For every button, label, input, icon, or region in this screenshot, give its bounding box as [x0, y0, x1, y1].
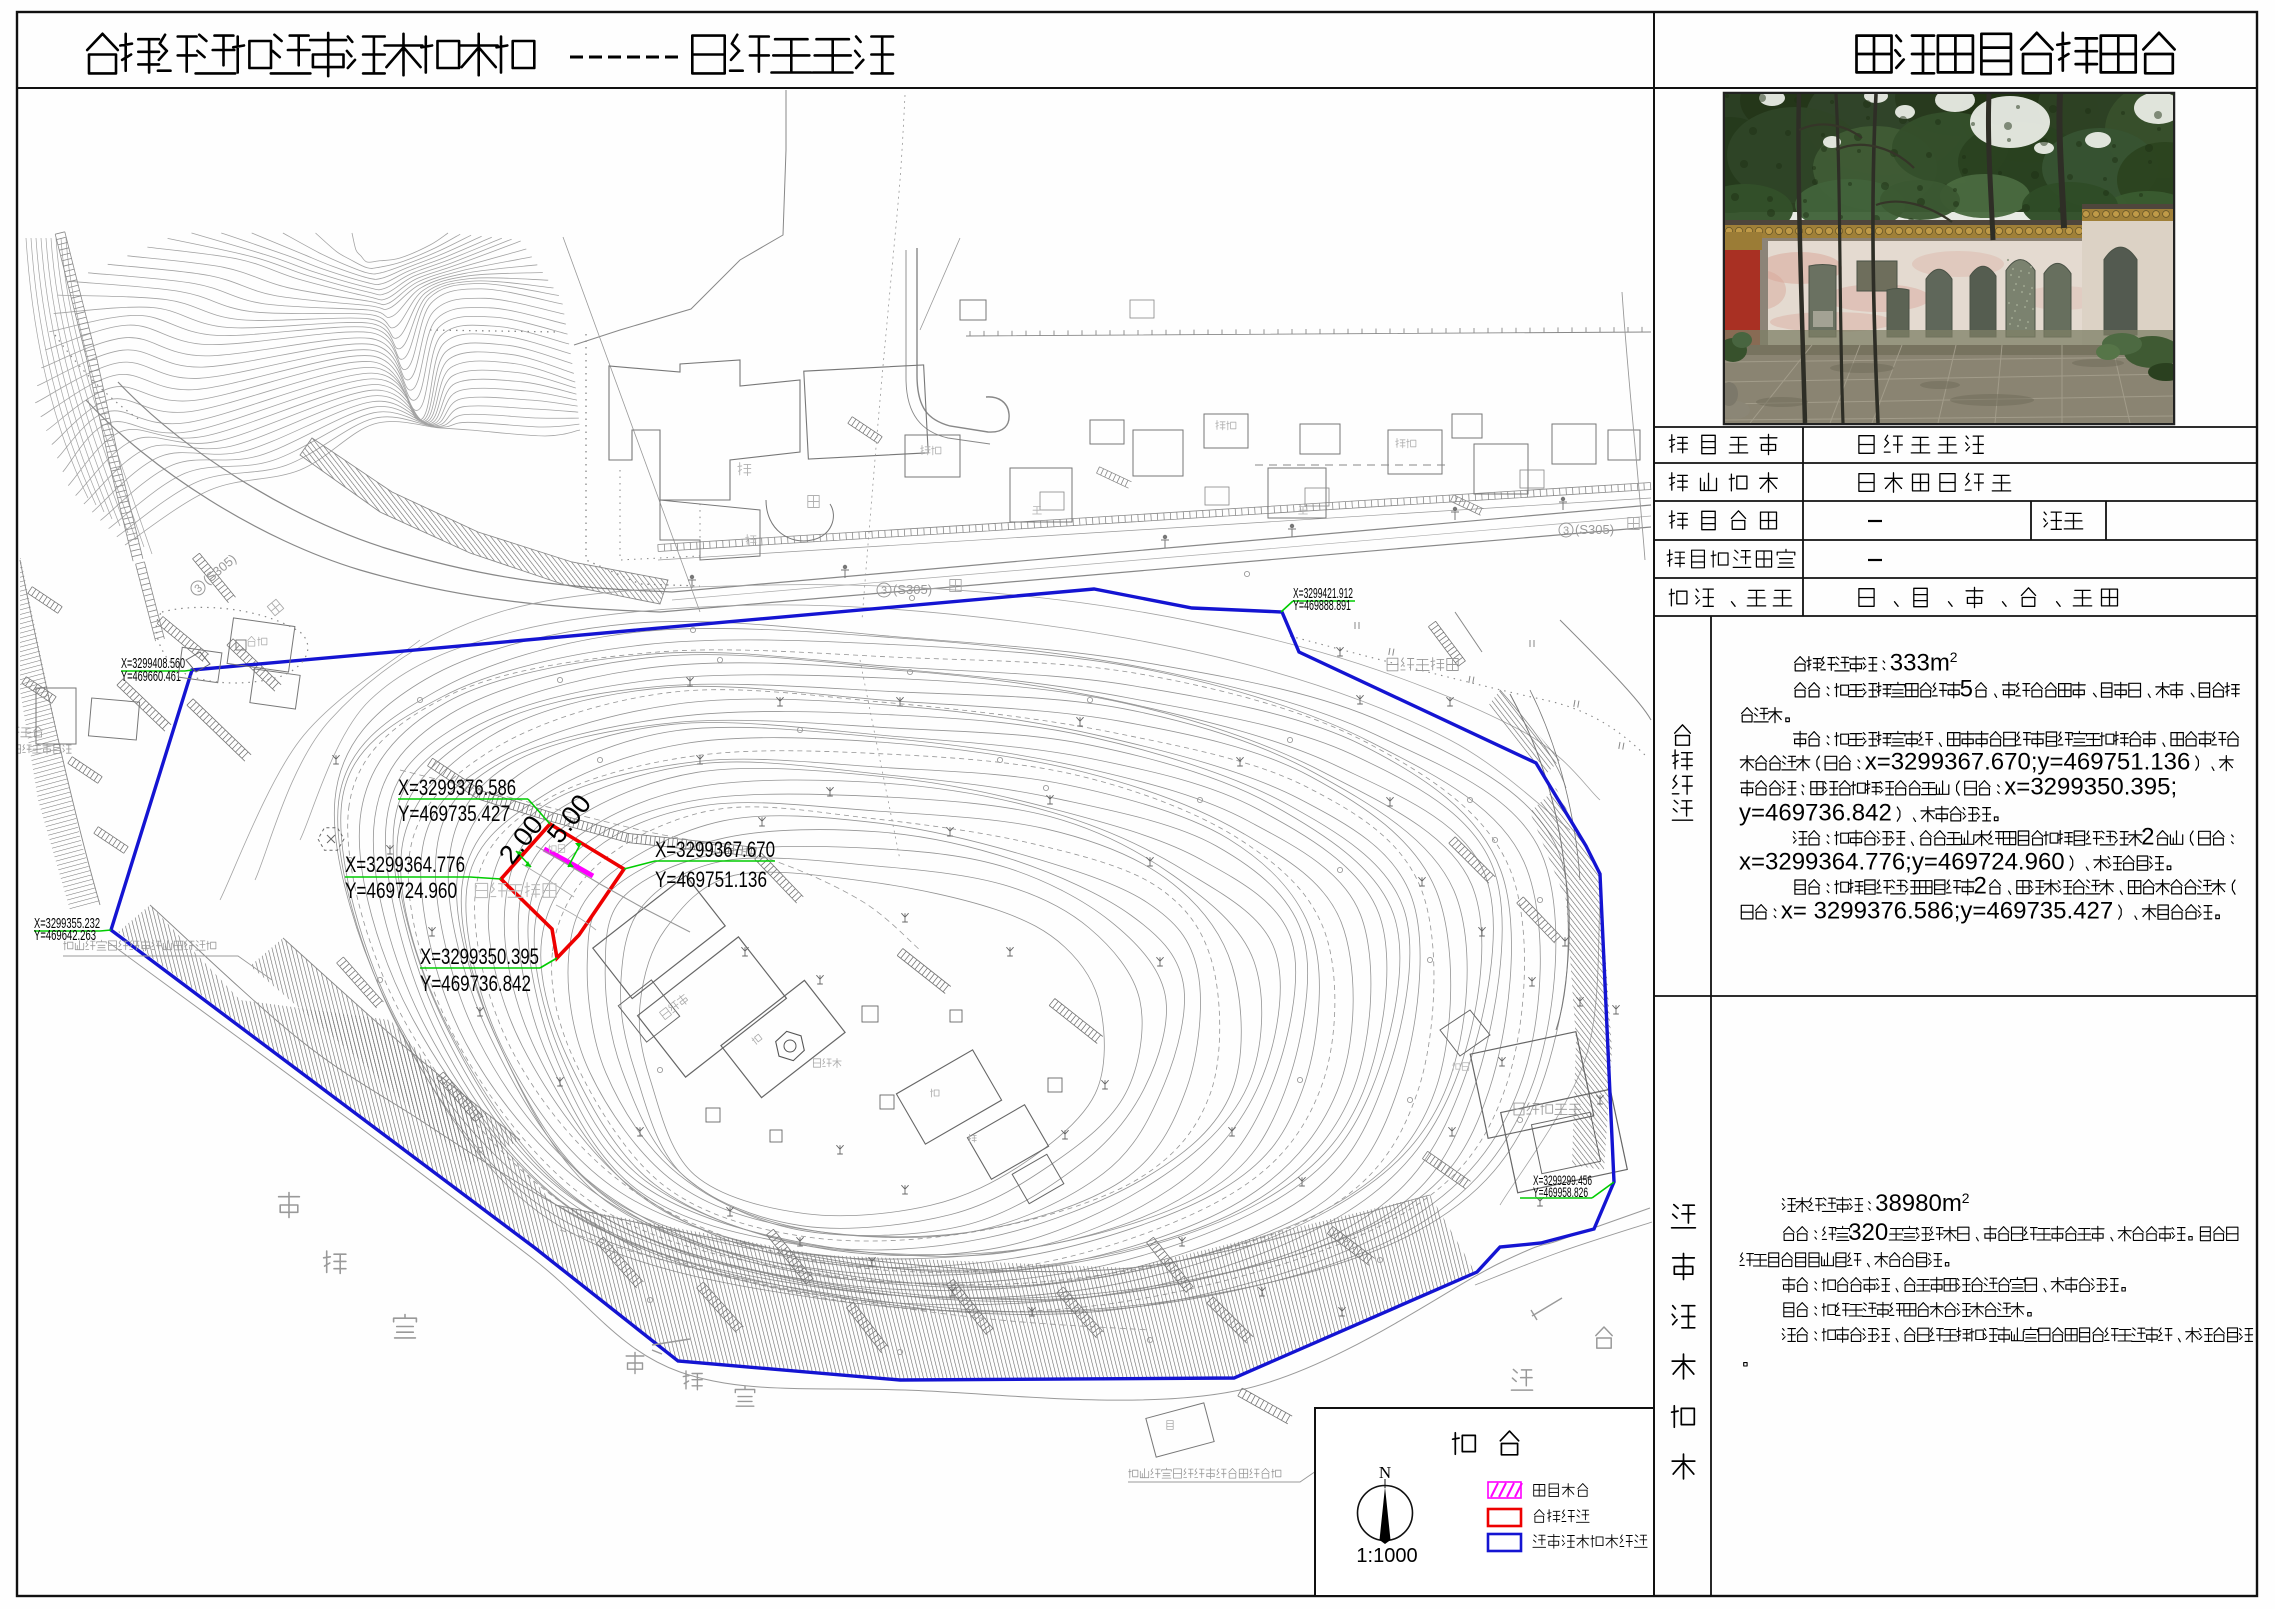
svg-text:2: 2 — [1950, 649, 1958, 665]
svg-text:5: 5 — [1960, 676, 1973, 703]
svg-text:x=3299364.776;y=469724.960: x=3299364.776;y=469724.960 — [1739, 849, 2065, 876]
svg-text:Y=469660.461: Y=469660.461 — [121, 668, 181, 685]
svg-text:2: 2 — [1962, 1190, 1970, 1206]
svg-text:y=469736.842: y=469736.842 — [1739, 800, 1892, 827]
svg-text:(S305): (S305) — [1575, 522, 1614, 537]
svg-text:Y=469736.842: Y=469736.842 — [420, 971, 531, 996]
svg-text:3: 3 — [881, 585, 887, 597]
svg-text:X=3299376.586: X=3299376.586 — [398, 775, 516, 800]
svg-text:(S305): (S305) — [893, 582, 932, 597]
svg-text:N: N — [1379, 1463, 1391, 1482]
svg-text:38980m: 38980m — [1875, 1190, 1962, 1217]
svg-text:Y=469724.960: Y=469724.960 — [345, 878, 457, 903]
svg-text:Y=469735.427: Y=469735.427 — [398, 801, 510, 826]
svg-text:Y=469751.136: Y=469751.136 — [655, 867, 767, 892]
svg-text:X=3299367.670: X=3299367.670 — [655, 837, 775, 862]
svg-text:3: 3 — [1563, 525, 1569, 537]
svg-text:X=3299364.776: X=3299364.776 — [345, 852, 465, 877]
svg-text:Y=469888.891: Y=469888.891 — [1293, 597, 1351, 614]
svg-text:320: 320 — [1848, 1219, 1888, 1246]
svg-text:2: 2 — [2141, 824, 2154, 851]
svg-text:1:1000: 1:1000 — [1356, 1545, 1417, 1567]
svg-text:2: 2 — [1974, 873, 1987, 900]
svg-text:x= 3299376.586;y=469735.427: x= 3299376.586;y=469735.427 — [1781, 898, 2113, 925]
svg-text:x=3299350.395;: x=3299350.395; — [2004, 774, 2177, 801]
svg-text:Y=469958.826: Y=469958.826 — [1533, 1184, 1588, 1200]
svg-text:x=3299367.670;y=469751.136: x=3299367.670;y=469751.136 — [1865, 749, 2191, 776]
svg-text:X=3299350.395: X=3299350.395 — [420, 944, 539, 969]
svg-text:333m: 333m — [1890, 650, 1950, 677]
